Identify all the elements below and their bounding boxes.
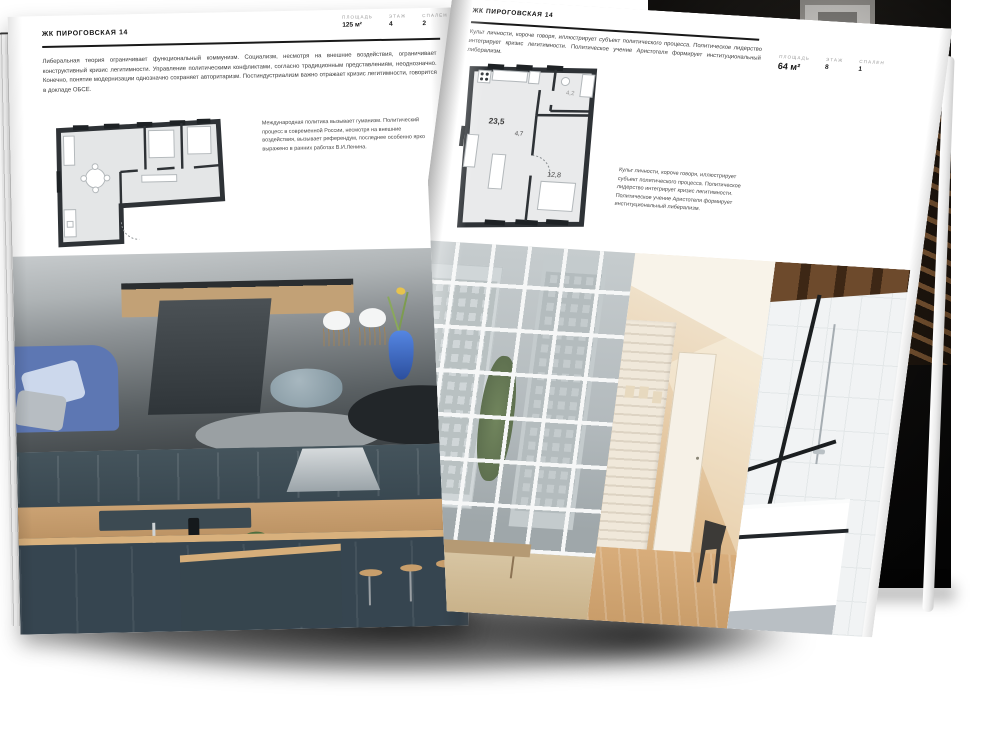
photo-kitchen-island bbox=[148, 298, 272, 414]
photo-white-chair bbox=[359, 308, 386, 328]
left-page: ЖК ПИРОГОВСКАЯ 14 ПЛОЩАДЬ 125 м² ЭТАЖ 4 … bbox=[8, 7, 469, 634]
left-page-title: ЖК ПИРОГОВСКАЯ 14 bbox=[42, 29, 128, 38]
photo-wood-floor bbox=[587, 547, 737, 629]
photo-floor-planks bbox=[587, 547, 737, 629]
stat-area-label: ПЛОЩАДЬ bbox=[779, 54, 810, 61]
left-header-rule bbox=[42, 38, 440, 48]
photo-bathtub bbox=[727, 499, 850, 637]
stat-floor: ЭТАЖ 4 bbox=[389, 13, 407, 27]
photo-picture-frame bbox=[652, 391, 663, 403]
right-plan-note: Культ личности, короче говоря, иллюстрир… bbox=[614, 166, 752, 216]
right-stats: ПЛОЩАДЬ 64 м² ЭТАЖ 8 СПАЛЕН 1 bbox=[761, 53, 885, 77]
left-intro-paragraph: Либеральная теория ограничивает функцион… bbox=[42, 50, 437, 96]
room-label-living: 23,5 bbox=[488, 116, 505, 126]
photo-cabinet-panels bbox=[17, 447, 466, 504]
photo-door-handle bbox=[696, 456, 699, 459]
stat-area: ПЛОЩАДЬ 64 м² bbox=[777, 54, 810, 73]
photo-flower-stem bbox=[387, 296, 400, 334]
floor-plan-125m2 bbox=[44, 110, 231, 262]
photo-chair-legs bbox=[323, 328, 350, 346]
room-label-bath: 4,2 bbox=[566, 90, 576, 97]
photo-teal-kitchen bbox=[17, 443, 469, 634]
stat-area: ПЛОЩАДЬ 125 м² bbox=[342, 14, 373, 29]
stat-floor: ЭТАЖ 8 bbox=[824, 57, 844, 75]
photo-blue-vase bbox=[388, 331, 414, 381]
left-plan-note: Международная политика вызывает гуманизм… bbox=[262, 116, 435, 154]
photo-white-chair bbox=[323, 310, 350, 330]
stat-bedrooms-value: 1 bbox=[858, 66, 884, 74]
photo-picture-frame bbox=[625, 386, 636, 398]
stat-area-value: 64 м² bbox=[777, 61, 809, 73]
right-page: ЖК ПИРОГОВСКАЯ 14 Культ личности, короче… bbox=[372, 0, 952, 637]
photo-picture-frame bbox=[639, 386, 650, 398]
photo-splash-panel bbox=[99, 508, 252, 531]
photo-flower-bloom bbox=[396, 287, 407, 297]
photo-grey-living-room bbox=[13, 247, 465, 452]
stat-bedrooms-label: СПАЛЕН bbox=[859, 59, 885, 66]
room-label-bedroom: 12,8 bbox=[547, 171, 562, 180]
stat-floor-label: ЭТАЖ bbox=[389, 13, 406, 18]
room-label-hall: 4,7 bbox=[514, 130, 524, 137]
stat-area-label: ПЛОЩАДЬ bbox=[342, 14, 373, 20]
photo-kitchen-island bbox=[180, 544, 343, 635]
stat-area-value: 125 м² bbox=[342, 21, 373, 29]
photo-chair-legs bbox=[359, 327, 386, 345]
stat-floor-value: 8 bbox=[824, 64, 842, 72]
photo-pouf bbox=[270, 367, 342, 408]
stat-floor-value: 4 bbox=[389, 20, 407, 27]
stat-bedrooms: СПАЛЕН 1 bbox=[857, 59, 885, 77]
stat-floor-label: ЭТАЖ bbox=[826, 57, 844, 63]
brochure-mockup-scene: ЖК ПИРОГОВСКАЯ 14 ПЛОЩАДЬ 125 м² ЭТАЖ 4 … bbox=[0, 0, 991, 740]
